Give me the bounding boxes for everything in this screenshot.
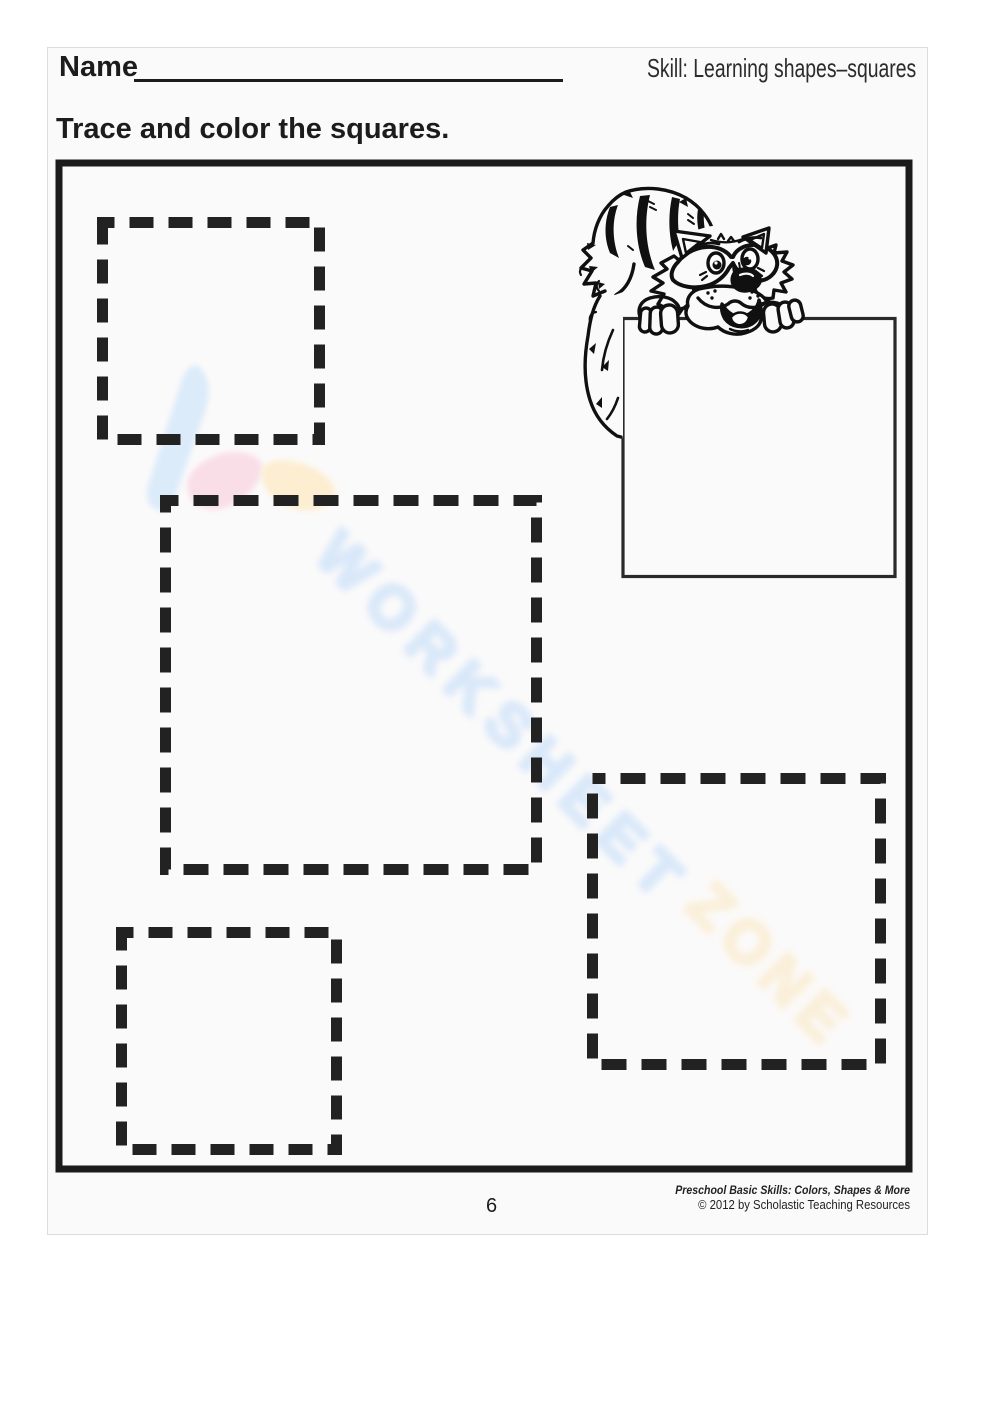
svg-text:WORKSHEET: WORKSHEET — [303, 519, 703, 919]
svg-text:ZONE: ZONE — [675, 870, 866, 1061]
